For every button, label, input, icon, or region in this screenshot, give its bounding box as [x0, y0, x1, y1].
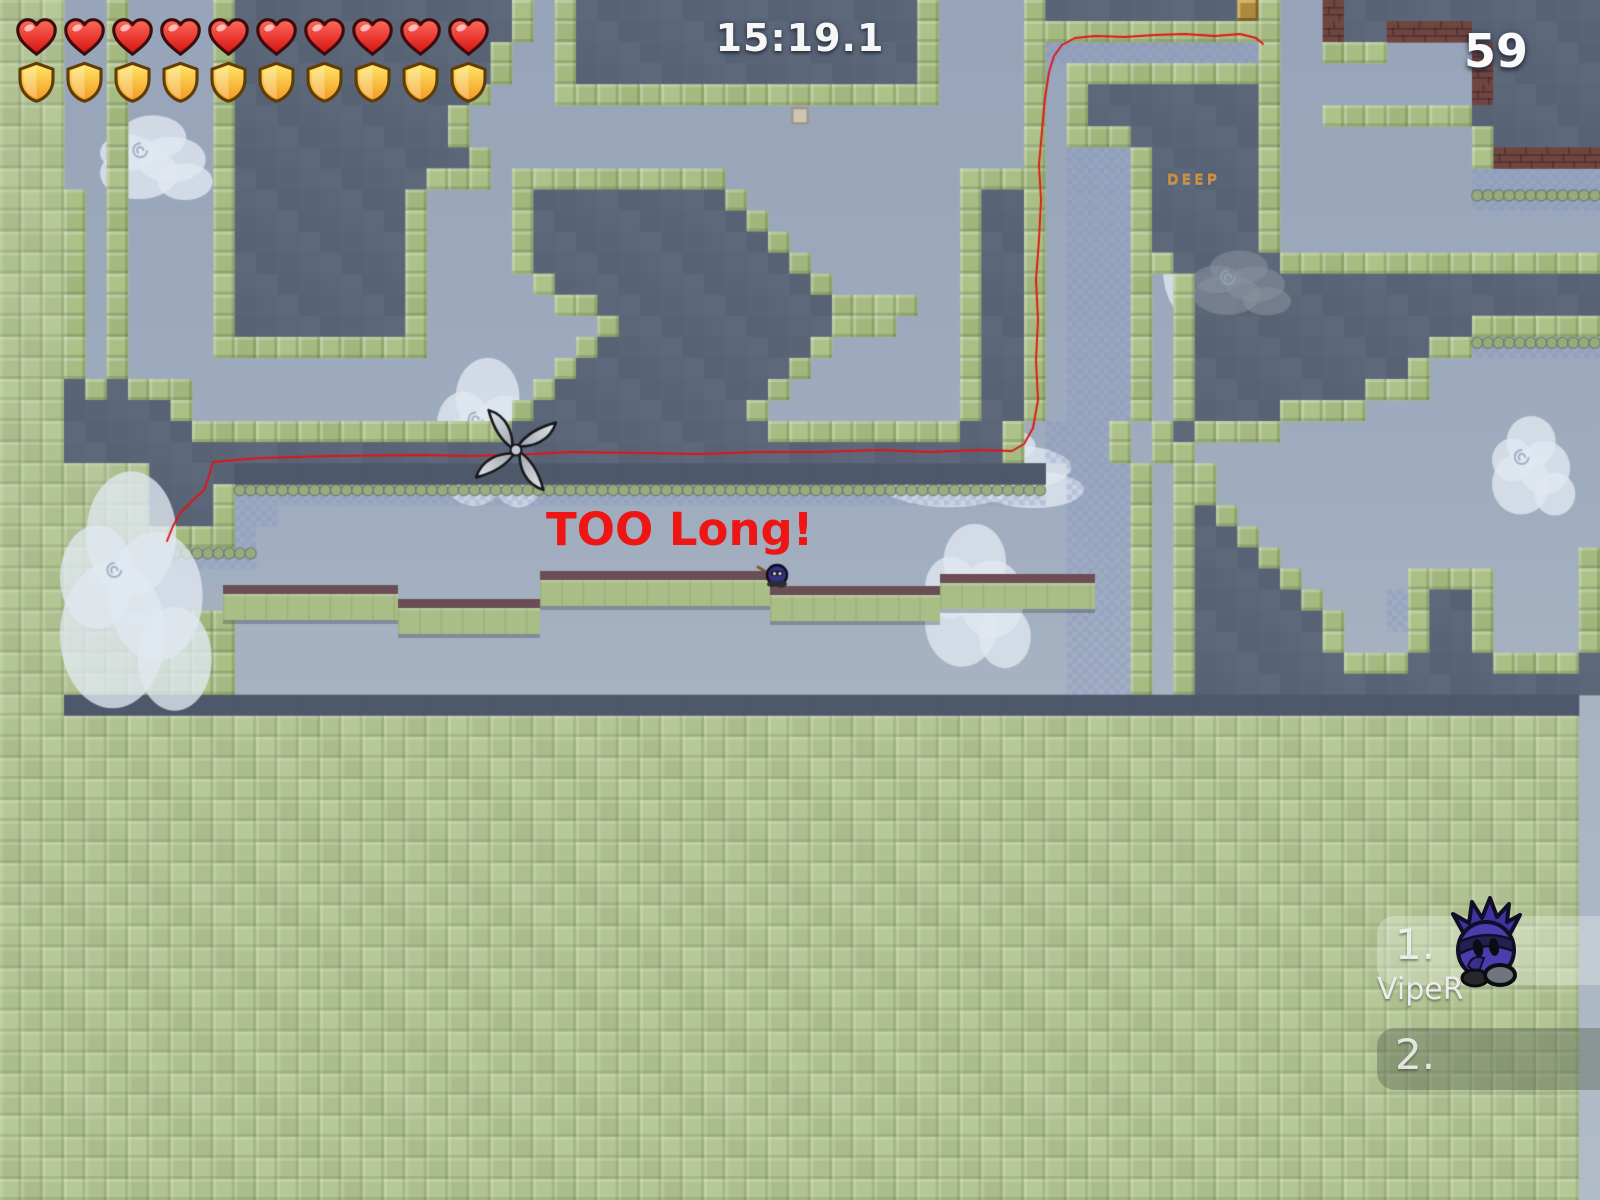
leaderboard-row-2: 2. [1377, 1028, 1600, 1090]
leaderboard-rank-2: 2. [1395, 1030, 1435, 1079]
leaderboard-rank-1: 1. [1395, 920, 1435, 969]
shield-icon [62, 60, 107, 104]
avatar-foot-front [1485, 965, 1515, 985]
shield-icon [110, 60, 155, 104]
armor-bar [14, 60, 491, 104]
map-message-too-long: TOO Long! [546, 503, 813, 556]
shield-icon [302, 60, 347, 104]
shield-icon [446, 60, 491, 104]
map-label-deep: DEEP [1167, 172, 1220, 188]
shield-icon [398, 60, 443, 104]
game-world[interactable] [0, 0, 1600, 1200]
shield-icon [206, 60, 251, 104]
shield-icon [350, 60, 395, 104]
shield-icon [158, 60, 203, 104]
race-timer: 15:19.1 [0, 16, 1600, 60]
shield-icon [14, 60, 59, 104]
leaderboard-name-1: VipeR [1377, 972, 1464, 1007]
game-screen: 15:19.1 59 TOO Long! DEEP 1. VipeR 2. [0, 0, 1600, 1200]
shield-icon [254, 60, 299, 104]
counter-value: 59 [1464, 24, 1528, 78]
